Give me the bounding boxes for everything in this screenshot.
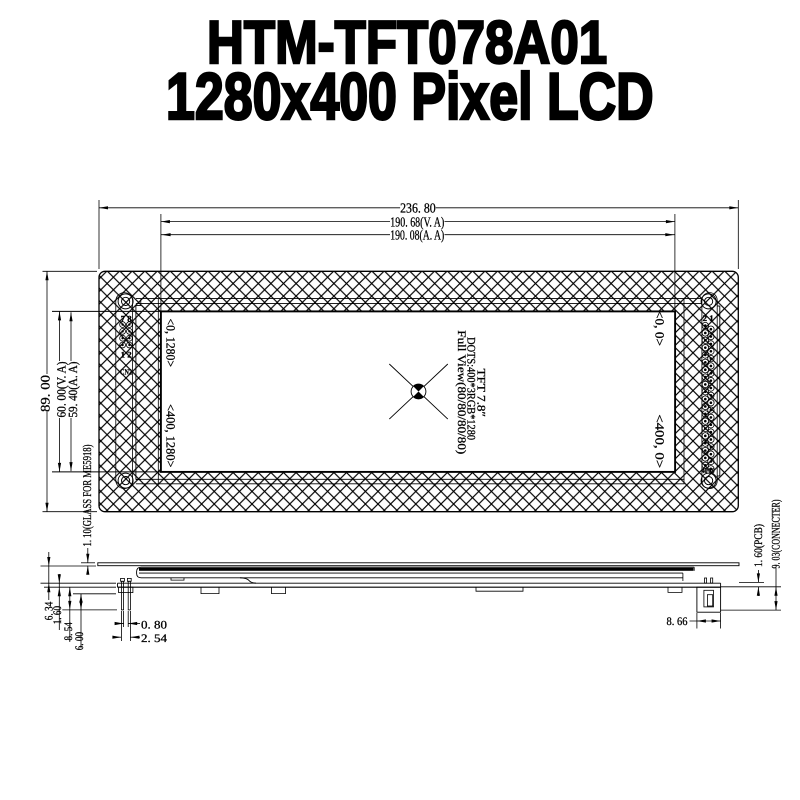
svg-text:Full View(80/80/80/80): Full View(80/80/80/80) xyxy=(455,330,467,454)
svg-text:<400, 1280>: <400, 1280> xyxy=(163,404,177,468)
svg-text:8. 66: 8. 66 xyxy=(667,616,688,628)
svg-text:2. 54: 2. 54 xyxy=(141,633,167,645)
svg-text:1. 60(PCB): 1. 60(PCB) xyxy=(753,524,765,567)
svg-text:1. 10(GLASS FOR ME5918): 1. 10(GLASS FOR ME5918) xyxy=(80,445,94,547)
svg-text:236. 80: 236. 80 xyxy=(400,200,436,215)
svg-text:CN2: CN2 xyxy=(120,368,132,377)
svg-text:2 1: 2 1 xyxy=(703,313,714,323)
svg-text:6. 00: 6. 00 xyxy=(74,632,86,651)
svg-text:<0, 0>: <0, 0> xyxy=(653,311,667,346)
svg-text:0. 80: 0. 80 xyxy=(141,620,167,632)
svg-text:1. 60: 1. 60 xyxy=(52,606,64,625)
svg-text:8. 54: 8. 54 xyxy=(63,622,75,641)
svg-text:<0, 1280>: <0, 1280> xyxy=(163,319,177,368)
svg-text:7 8: 7 8 xyxy=(121,314,132,324)
svg-text:1 2: 1 2 xyxy=(121,350,132,360)
svg-text:190. 08(A. A): 190. 08(A. A) xyxy=(390,227,444,242)
svg-text:1280x400 Pixel LCD: 1280x400 Pixel LCD xyxy=(166,59,654,133)
svg-text:40 39: 40 39 xyxy=(702,467,715,475)
svg-text:9. 03(CONNECTER): 9. 03(CONNECTER) xyxy=(771,499,783,568)
svg-text:59. 40(A. A): 59. 40(A. A) xyxy=(66,362,80,418)
svg-text:89. 00: 89. 00 xyxy=(38,375,53,412)
svg-text:<400, 0>: <400, 0> xyxy=(653,414,667,468)
